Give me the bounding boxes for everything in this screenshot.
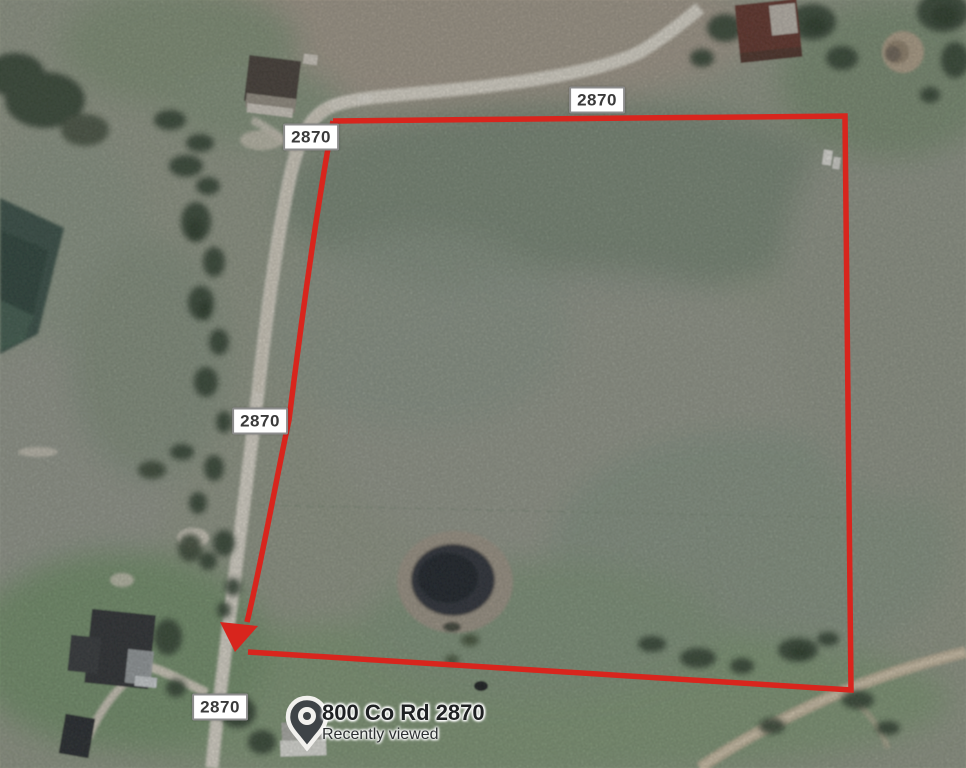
place-title: 800 Co Rd 2870 xyxy=(322,700,485,726)
place-marker[interactable]: 800 Co Rd 2870 Recently viewed xyxy=(284,694,684,764)
road-label-2870-south: 2870 xyxy=(192,694,248,721)
road-label-2870-north: 2870 xyxy=(569,87,625,114)
place-status: Recently viewed xyxy=(322,726,439,744)
satellite-imagery xyxy=(0,0,966,768)
satellite-map[interactable]: 2870 2870 2870 2870 800 Co Rd 2870 Recen… xyxy=(0,0,966,768)
road-label-2870-northwest: 2870 xyxy=(283,124,339,151)
road-label-2870-west: 2870 xyxy=(232,408,288,435)
